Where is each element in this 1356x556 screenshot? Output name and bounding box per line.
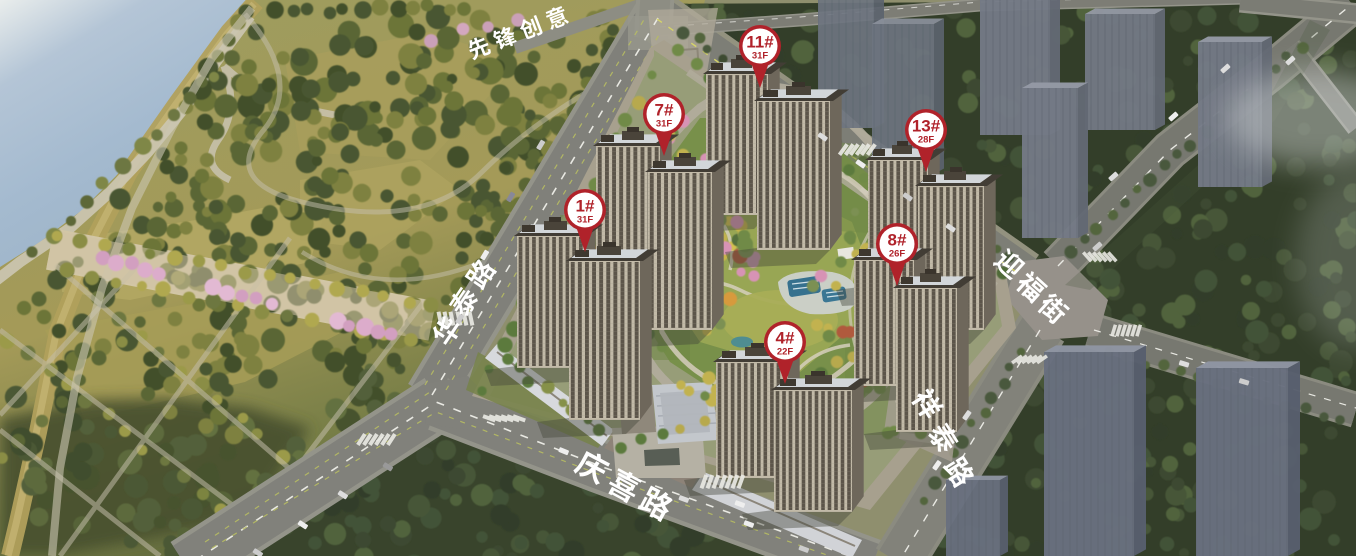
svg-text:4#: 4#: [776, 329, 795, 348]
svg-text:8#: 8#: [888, 231, 907, 250]
svg-text:26F: 26F: [889, 249, 906, 260]
svg-text:28F: 28F: [918, 135, 935, 146]
svg-text:22F: 22F: [777, 347, 794, 358]
svg-text:31F: 31F: [577, 215, 594, 226]
svg-text:1#: 1#: [576, 197, 595, 216]
svg-text:11#: 11#: [746, 33, 774, 52]
svg-text:31F: 31F: [752, 51, 769, 62]
svg-text:7#: 7#: [655, 101, 674, 120]
svg-text:31F: 31F: [656, 119, 673, 130]
svg-text:13#: 13#: [912, 117, 941, 136]
